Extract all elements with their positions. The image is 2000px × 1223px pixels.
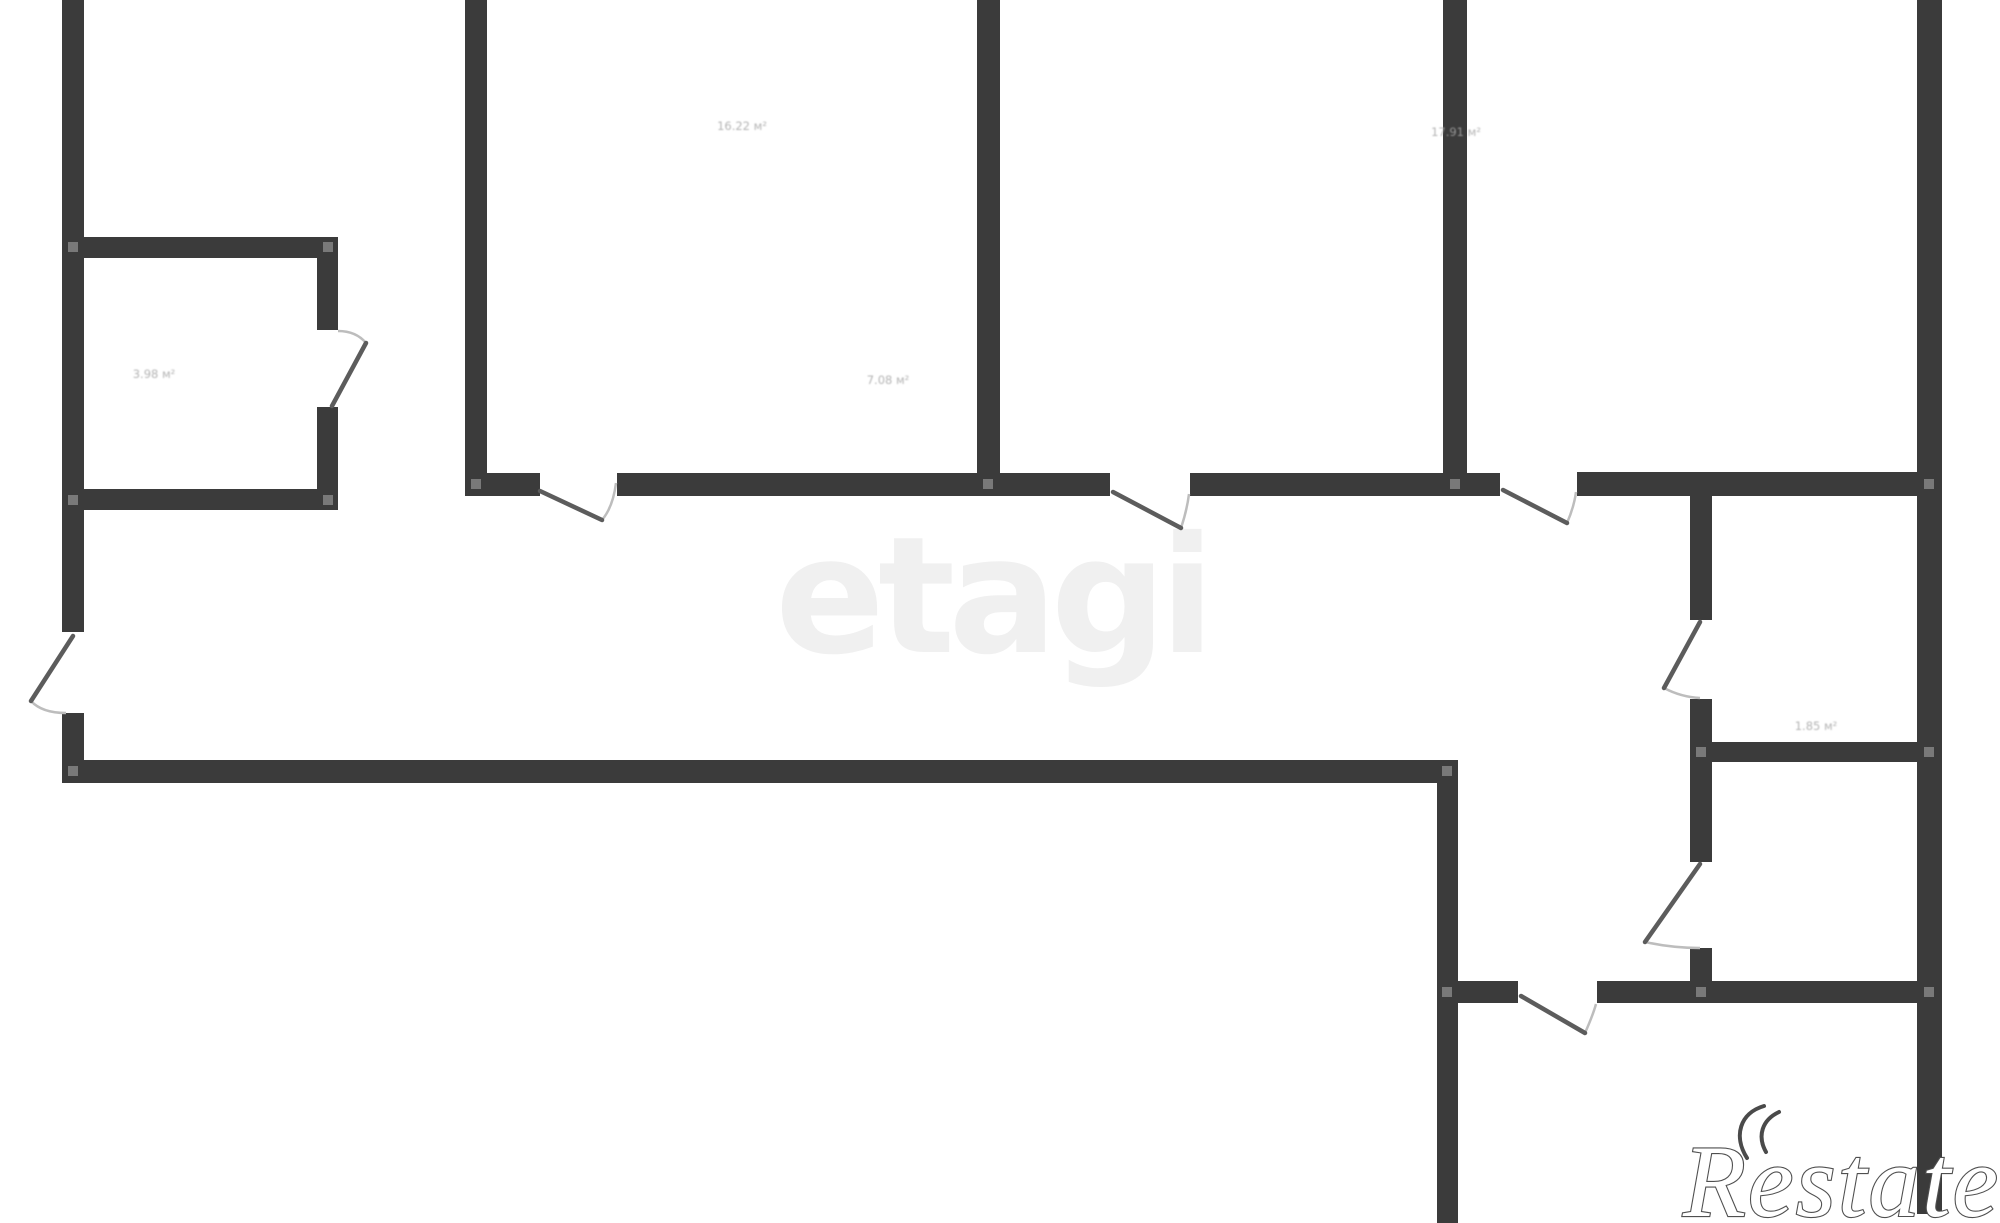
room-area-label: 7.08 м² (867, 373, 910, 387)
wall-joint-dot (471, 479, 481, 489)
wall-joint-dot (1696, 747, 1706, 757)
wall-joint-dot (1924, 747, 1934, 757)
door-swing-arc (338, 331, 366, 343)
wall (617, 473, 1110, 496)
wall-joint-dot (68, 242, 78, 252)
room-area-label: 1.85 м² (1795, 719, 1838, 733)
wall (465, 0, 487, 493)
etagi-watermark: etagi (775, 503, 1208, 691)
door-swing-arc (1645, 942, 1700, 948)
room-area-label: 3.98 м² (133, 367, 176, 381)
wall (1917, 0, 1942, 1214)
wall-joint-dot (1924, 987, 1934, 997)
room-area-label: 16.22 м² (717, 119, 767, 133)
wall (62, 760, 1458, 783)
wall-joint-dot (1696, 987, 1706, 997)
door-leaf (332, 343, 366, 406)
floor-plan-page: etagi 16.22 м²7.08 м²3.98 м²17.91 м²1.85… (0, 0, 2000, 1223)
door-leaf (1521, 996, 1585, 1033)
wall (1597, 981, 1917, 1003)
floor-plan-canvas: etagi 16.22 м²7.08 м²3.98 м²17.91 м²1.85… (0, 0, 2000, 1223)
door-swing-arc (1664, 688, 1700, 698)
wall-joint-dot (323, 495, 333, 505)
door-leaf (1645, 864, 1700, 942)
door-leaf (31, 636, 73, 701)
wall (1443, 0, 1467, 473)
restate-watermark: Restate (1682, 1125, 2000, 1223)
door-swing-arc (31, 701, 66, 713)
wall-joint-dot (323, 242, 333, 252)
wall-joint-dot (1442, 766, 1452, 776)
wall (84, 489, 338, 510)
door-swing-arc (1585, 1004, 1596, 1033)
door-swing-arc (1567, 492, 1576, 523)
wall-joint-dot (1924, 479, 1934, 489)
door-leaf (1503, 490, 1567, 523)
wall (977, 0, 1000, 473)
door-leaf (540, 491, 602, 520)
room-area-label: 17.91 м² (1431, 125, 1481, 139)
door-swing-arc (602, 483, 616, 520)
wall-joint-dot (68, 766, 78, 776)
wall-joint-dot (1450, 479, 1460, 489)
wall (1690, 496, 1712, 620)
wall (1458, 981, 1518, 1003)
wall (1577, 472, 1917, 496)
wall-joint-dot (1442, 987, 1452, 997)
wall (1690, 699, 1712, 862)
wall (84, 237, 338, 258)
wall-joint-dot (983, 479, 993, 489)
door-leaf (1664, 622, 1700, 688)
wall-joint-dot (68, 495, 78, 505)
wall (1712, 742, 1917, 762)
wall (62, 0, 84, 632)
